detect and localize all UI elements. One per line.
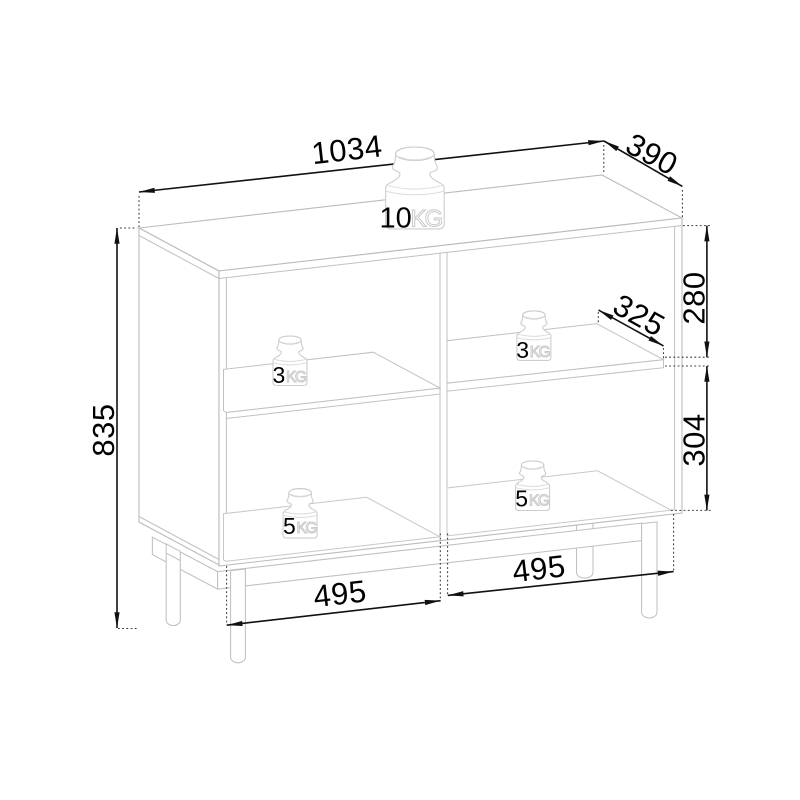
svg-text:5: 5 (283, 513, 296, 539)
svg-text:304: 304 (677, 413, 712, 466)
svg-text:5: 5 (515, 486, 528, 512)
svg-text:KG: KG (530, 344, 550, 361)
svg-text:KG: KG (529, 493, 549, 510)
svg-text:3: 3 (273, 362, 286, 388)
svg-text:280: 280 (677, 271, 712, 324)
svg-text:495: 495 (312, 573, 369, 614)
svg-text:KG: KG (286, 369, 306, 386)
svg-text:KG: KG (411, 206, 442, 233)
svg-text:3: 3 (516, 337, 529, 363)
svg-text:495: 495 (511, 548, 568, 589)
svg-text:10: 10 (380, 203, 412, 235)
svg-text:KG: KG (297, 520, 317, 537)
svg-text:835: 835 (86, 403, 121, 456)
